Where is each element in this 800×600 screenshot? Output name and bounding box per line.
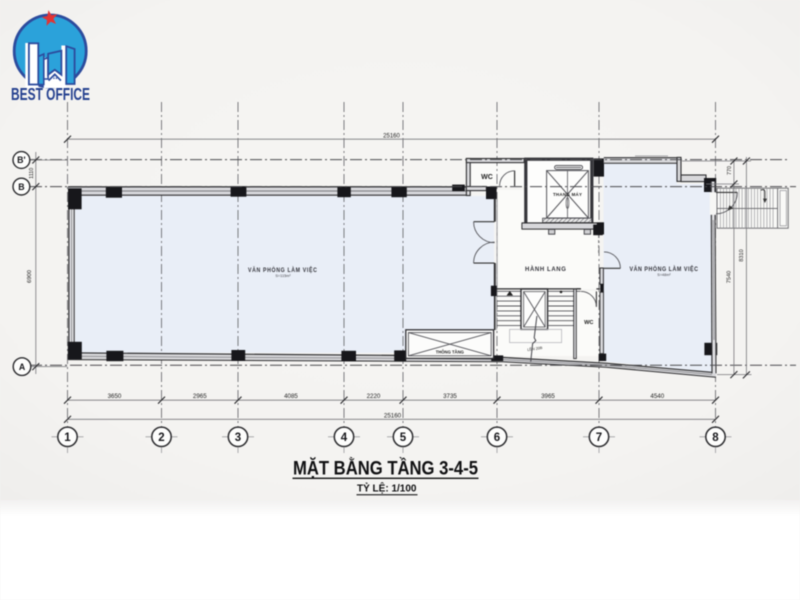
svg-text:4: 4 xyxy=(341,432,348,444)
svg-text:VĂN PHÒNG LÀM VIỆC: VĂN PHÒNG LÀM VIỆC xyxy=(630,265,699,273)
svg-text:VĂN PHÒNG LÀM VIỆC: VĂN PHÒNG LÀM VIỆC xyxy=(248,266,318,274)
svg-text:2220: 2220 xyxy=(367,393,381,400)
svg-text:7: 7 xyxy=(596,432,602,444)
svg-text:TỶ LỆ: 1/100: TỶ LỆ: 1/100 xyxy=(357,482,417,495)
svg-text:B': B' xyxy=(17,155,25,165)
svg-text:3735: 3735 xyxy=(443,393,457,400)
svg-text:8310: 8310 xyxy=(739,249,745,261)
svg-text:3650: 3650 xyxy=(108,393,122,400)
svg-text:1110: 1110 xyxy=(29,168,35,179)
svg-text:8: 8 xyxy=(712,432,719,444)
svg-text:4540: 4540 xyxy=(650,393,664,400)
svg-text:770: 770 xyxy=(727,166,733,175)
svg-text:S=48m²: S=48m² xyxy=(657,273,671,277)
svg-text:BEST OFFICE: BEST OFFICE xyxy=(11,84,90,104)
svg-text:3965: 3965 xyxy=(541,393,555,400)
svg-text:7540: 7540 xyxy=(726,271,732,283)
svg-text:4085: 4085 xyxy=(284,393,298,400)
svg-text:25160: 25160 xyxy=(384,412,402,419)
svg-text:6900: 6900 xyxy=(27,270,33,283)
svg-text:1: 1 xyxy=(64,432,71,444)
svg-text:HÀNH LANG: HÀNH LANG xyxy=(525,264,567,273)
svg-text:WC: WC xyxy=(481,174,493,181)
svg-text:THÔNG TẦNG: THÔNG TẦNG xyxy=(436,350,464,355)
svg-text:A: A xyxy=(19,362,26,372)
svg-text:THANG MÁY: THANG MÁY xyxy=(553,192,582,197)
svg-text:WC: WC xyxy=(584,320,593,326)
svg-text:6: 6 xyxy=(494,432,500,444)
svg-text:S=115m²: S=115m² xyxy=(275,274,291,278)
svg-text:3: 3 xyxy=(235,432,241,444)
svg-text:2965: 2965 xyxy=(193,393,207,400)
svg-text:2: 2 xyxy=(158,432,164,444)
svg-text:B: B xyxy=(18,182,24,192)
svg-text:25160: 25160 xyxy=(383,133,400,139)
svg-text:MẶT BẰNG TẦNG 3-4-5: MẶT BẰNG TẦNG 3-4-5 xyxy=(293,457,478,479)
svg-text:5: 5 xyxy=(400,432,407,444)
